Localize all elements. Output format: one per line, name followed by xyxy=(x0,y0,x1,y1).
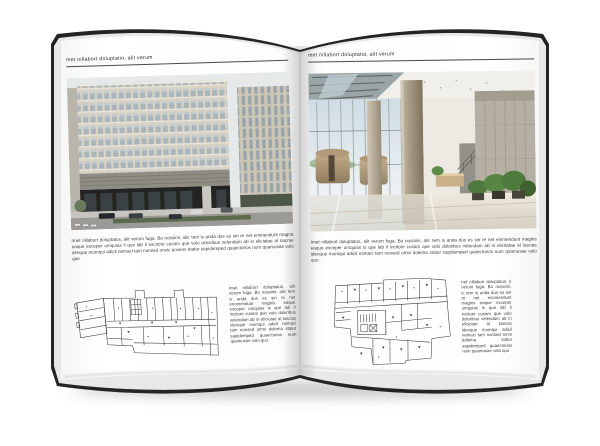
right-page: met nillabort doluptatia, alit verum xyxy=(308,49,538,369)
right-plan-note: Iref nillabort doluptatus, it verum fuga… xyxy=(461,279,512,354)
left-body-paragraph: Imet nillabort doluptatus, alit verum fu… xyxy=(71,232,294,263)
interior-lobby-photo xyxy=(308,70,536,231)
right-building xyxy=(237,86,292,199)
left-floor-plan xyxy=(72,282,224,370)
right-plan-row: Iref nillabort doluptatus, it verum fuga… xyxy=(311,274,538,369)
far-column xyxy=(367,101,382,207)
left-plan-note: Imet nillabort doluptatus, alit verum fu… xyxy=(229,284,297,344)
exterior-building-photo xyxy=(67,72,293,231)
left-plan-row: Imet nillabort doluptatus, alit verum fu… xyxy=(73,282,297,369)
right-body-paragraph: Imet nillabort doluptatus, alit verum fu… xyxy=(311,236,537,263)
main-tower-facade xyxy=(77,80,230,176)
left-page: met nillabort doluptatio, alit verum xyxy=(66,51,297,368)
book-mockup: met nillabort doluptatio, alit verum xyxy=(0,0,600,446)
right-header-rule xyxy=(308,58,534,62)
right-floor-plan xyxy=(327,276,454,369)
